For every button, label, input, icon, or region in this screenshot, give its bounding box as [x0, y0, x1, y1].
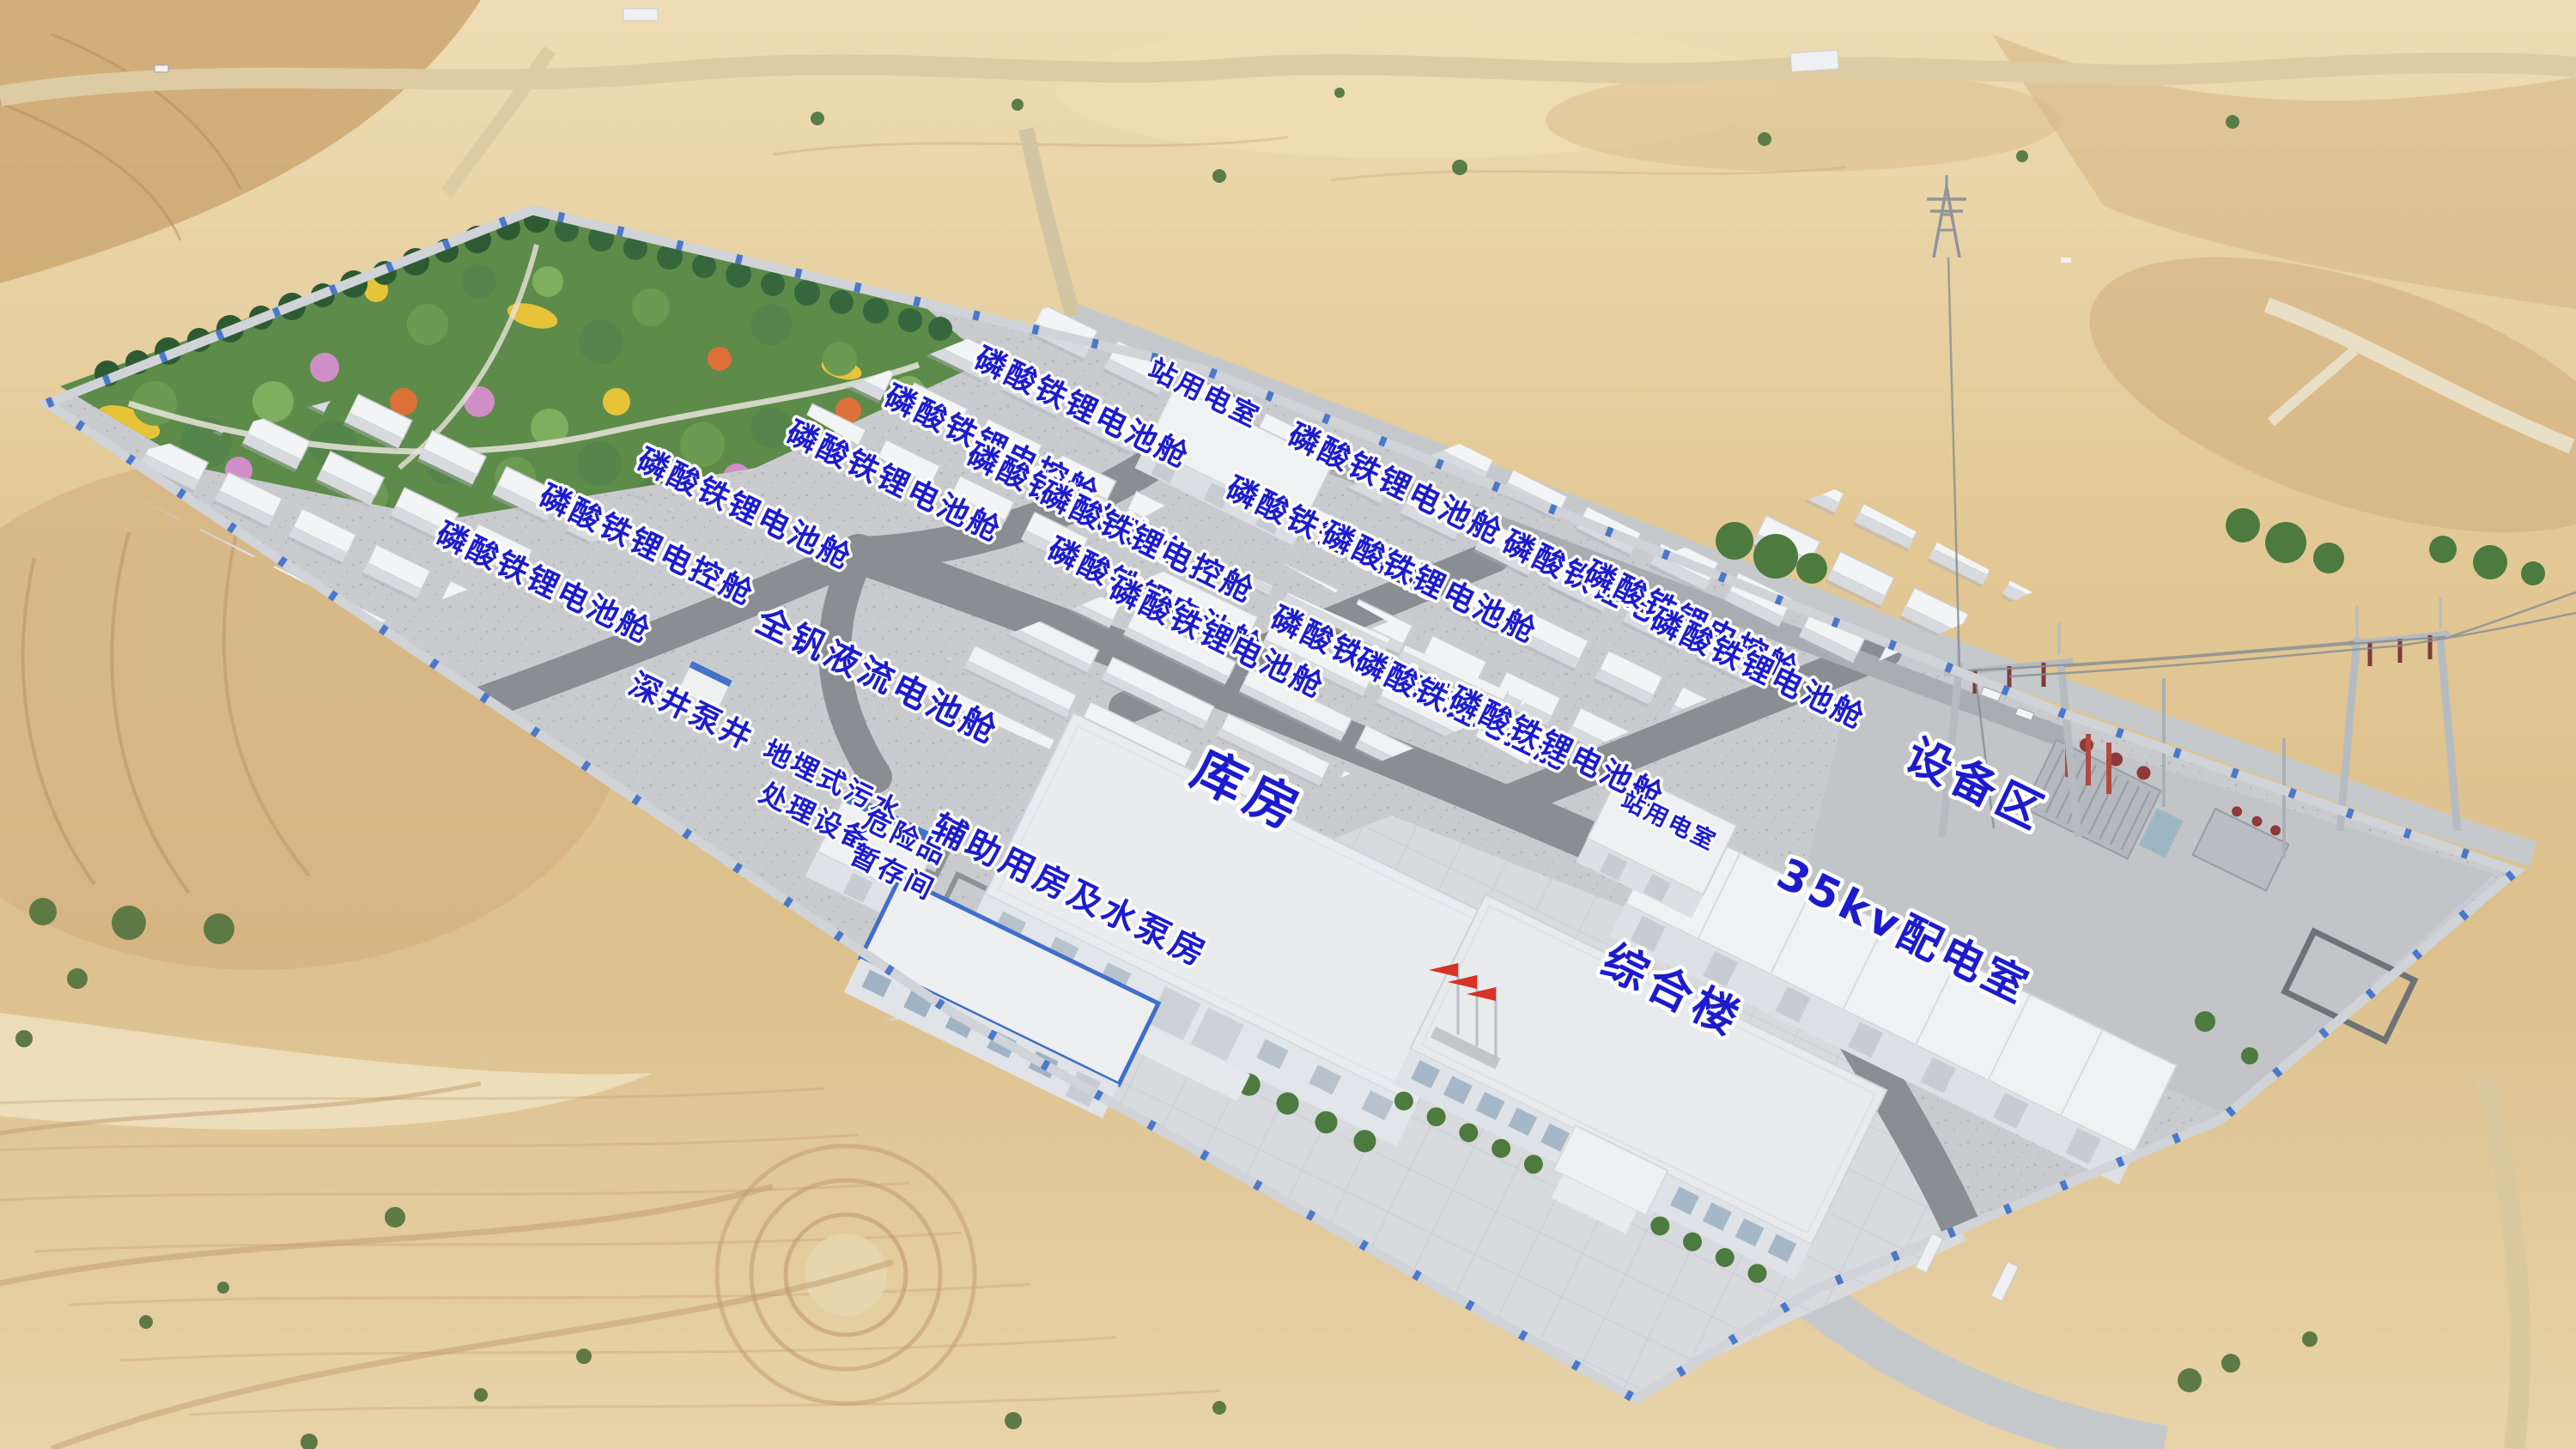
- aerial-render-viewport: 磷酸铁锂电池舱 磷酸铁锂电控舱 磷酸铁锂电池舱 磷酸铁锂电池舱 磷酸铁锂电控舱 …: [0, 0, 2576, 1449]
- distant-building: [1790, 50, 1838, 72]
- site-aerial-scene: 磷酸铁锂电池舱 磷酸铁锂电控舱 磷酸铁锂电池舱 磷酸铁锂电池舱 磷酸铁锂电控舱 …: [0, 0, 2576, 1449]
- distant-building: [623, 9, 658, 21]
